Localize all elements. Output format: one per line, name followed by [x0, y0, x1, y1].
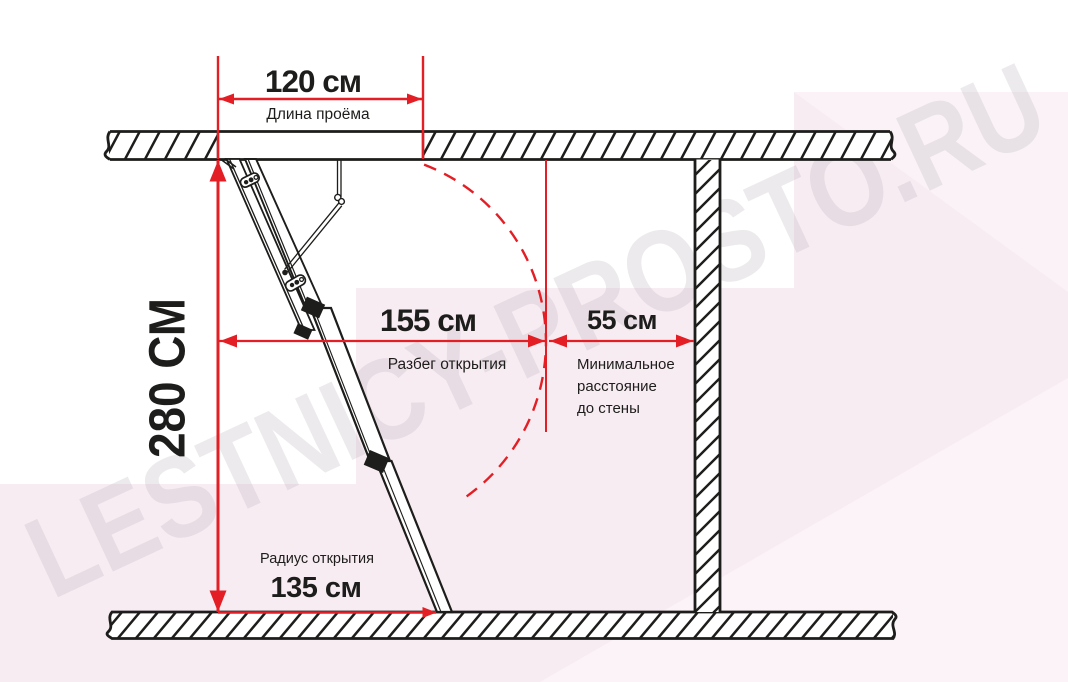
svg-text:Длина проёма: Длина проёма: [266, 106, 370, 123]
svg-text:280 СМ: 280 СМ: [139, 298, 196, 458]
svg-text:55 см: 55 см: [587, 305, 657, 335]
svg-text:Минимальное: Минимальное: [577, 356, 675, 373]
svg-text:до стены: до стены: [577, 400, 640, 417]
svg-text:135 см: 135 см: [270, 572, 361, 604]
svg-text:Радиус открытия: Радиус открытия: [260, 551, 374, 567]
svg-text:Разбег открытия: Разбег открытия: [388, 356, 507, 373]
svg-text:расстояние: расстояние: [577, 378, 657, 395]
svg-text:155 см: 155 см: [380, 302, 476, 338]
svg-text:120 см: 120 см: [265, 63, 361, 99]
